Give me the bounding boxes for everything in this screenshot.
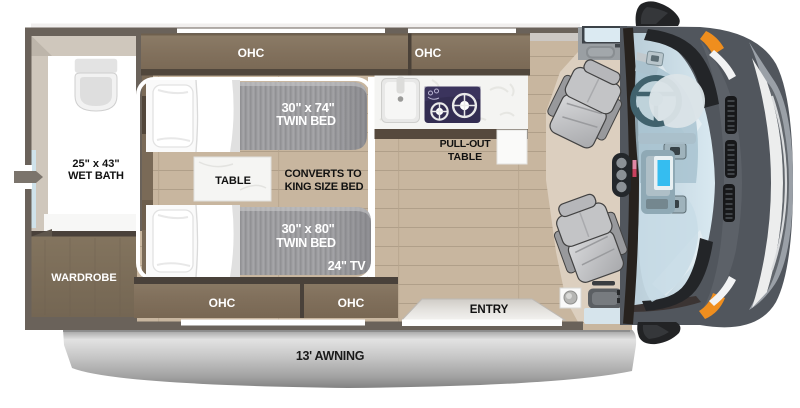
svg-text:WARDROBE: WARDROBE bbox=[51, 272, 116, 284]
svg-text:WET BATH: WET BATH bbox=[68, 170, 124, 182]
svg-text:OHC: OHC bbox=[415, 46, 442, 60]
svg-text:25" x 43": 25" x 43" bbox=[72, 158, 119, 170]
svg-text:CONVERTS TO: CONVERTS TO bbox=[284, 168, 362, 180]
svg-text:PULL-OUT: PULL-OUT bbox=[440, 138, 492, 150]
svg-text:30" x 74": 30" x 74" bbox=[281, 100, 334, 115]
svg-text:13' AWNING: 13' AWNING bbox=[296, 349, 364, 363]
svg-text:30" x 80": 30" x 80" bbox=[281, 221, 334, 236]
svg-text:ENTRY: ENTRY bbox=[470, 304, 509, 316]
svg-text:KING SIZE BED: KING SIZE BED bbox=[285, 181, 364, 193]
svg-text:TABLE: TABLE bbox=[215, 175, 251, 187]
svg-text:OHC: OHC bbox=[338, 296, 365, 310]
svg-text:OHC: OHC bbox=[238, 46, 265, 60]
svg-text:TWIN BED: TWIN BED bbox=[276, 114, 336, 128]
svg-text:OHC: OHC bbox=[209, 296, 236, 310]
svg-text:24" TV: 24" TV bbox=[328, 259, 366, 273]
svg-text:TWIN BED: TWIN BED bbox=[276, 236, 336, 250]
svg-text:TABLE: TABLE bbox=[448, 151, 482, 163]
